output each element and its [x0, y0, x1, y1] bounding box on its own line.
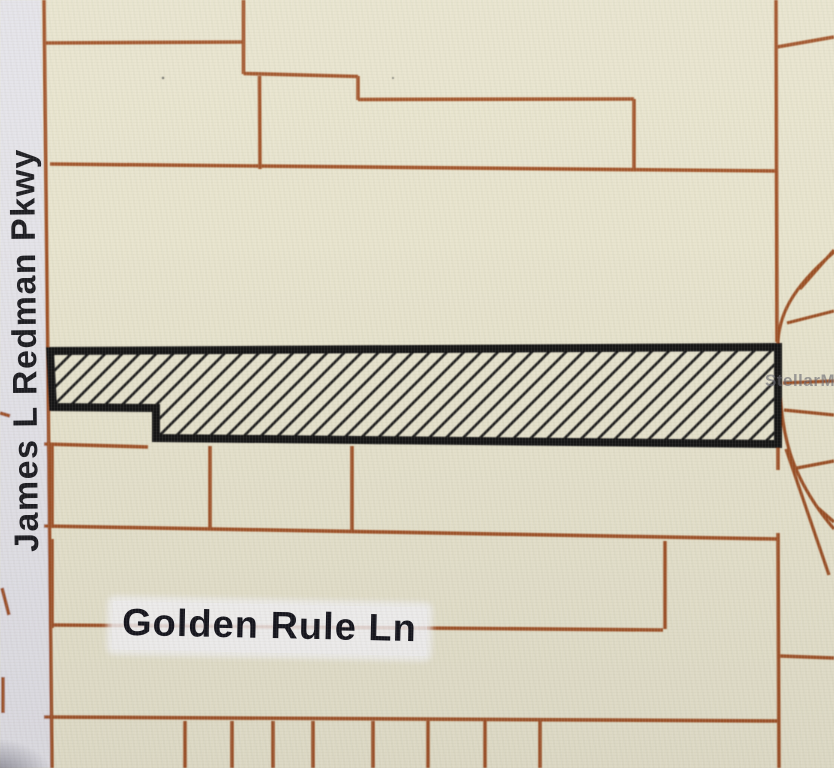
- plat-map-screenshot: James L Redman Pkwy Golden Rule Ln Stell…: [0, 0, 834, 768]
- scan-speck: [162, 77, 164, 79]
- road-label-golden-rule-ln: Golden Rule Ln: [112, 601, 428, 656]
- subject-parcel-highlight[interactable]: [50, 347, 778, 444]
- cul-de-sac-lot-lines: [778, 250, 834, 575]
- scan-speck: [392, 77, 394, 79]
- road-label-james-l-redman-pkwy: James L Redman Pkwy: [2, 140, 48, 560]
- stellar-mls-watermark: StellarMLS: [765, 371, 834, 391]
